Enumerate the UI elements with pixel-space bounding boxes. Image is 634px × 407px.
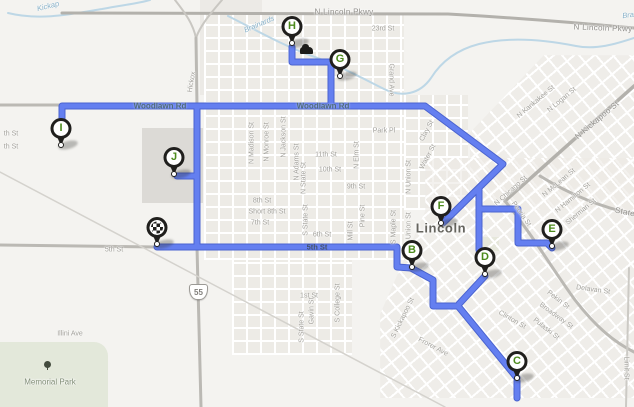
marker-head: J [164, 147, 185, 168]
marker-head: B [402, 240, 423, 261]
marker-letter: F [438, 201, 445, 212]
marker-head: D [475, 247, 496, 268]
marker-letter: D [481, 252, 489, 263]
marker-tip-hole [549, 243, 555, 249]
route-stop-marker-C[interactable]: C [505, 351, 529, 381]
marker-head: F [431, 196, 452, 217]
depot-marker[interactable] [145, 217, 169, 247]
marker-tip-hole [482, 271, 488, 277]
marker-tip-hole [514, 375, 520, 381]
marker-tip-hole [409, 264, 415, 270]
route-stop-marker-B[interactable]: B [400, 240, 424, 270]
marker-tip-hole [438, 220, 444, 226]
route-stop-marker-H[interactable]: H [280, 16, 304, 46]
checkered-flag-icon [147, 217, 168, 238]
marker-tip-hole [337, 73, 343, 79]
marker-letter: H [288, 21, 296, 32]
marker-head: E [542, 219, 563, 240]
route-stop-marker-F[interactable]: F [429, 196, 453, 226]
marker-letter: I [59, 123, 62, 134]
marker-letter: B [408, 245, 416, 256]
marker-letter: E [548, 224, 555, 235]
marker-head: G [330, 49, 351, 70]
marker-letter: G [336, 54, 345, 65]
marker-tip-hole [154, 241, 160, 247]
marker-head: I [51, 118, 72, 139]
map-canvas[interactable]: N Lincoln PkwyN Lincoln Pkwy23rd StKicka… [0, 0, 634, 407]
marker-head: C [507, 351, 528, 372]
markers-layer: IJHGFBDEC [0, 0, 634, 407]
route-stop-marker-D[interactable]: D [473, 247, 497, 277]
route-stop-marker-J[interactable]: J [162, 147, 186, 177]
marker-tip-hole [289, 40, 295, 46]
route-stop-marker-G[interactable]: G [328, 49, 352, 79]
marker-letter: C [513, 356, 521, 367]
marker-letter: J [171, 152, 177, 163]
marker-head: H [282, 16, 303, 37]
marker-tip-hole [58, 142, 64, 148]
route-stop-marker-E[interactable]: E [540, 219, 564, 249]
route-stop-marker-I[interactable]: I [49, 118, 73, 148]
marker-tip-hole [171, 171, 177, 177]
